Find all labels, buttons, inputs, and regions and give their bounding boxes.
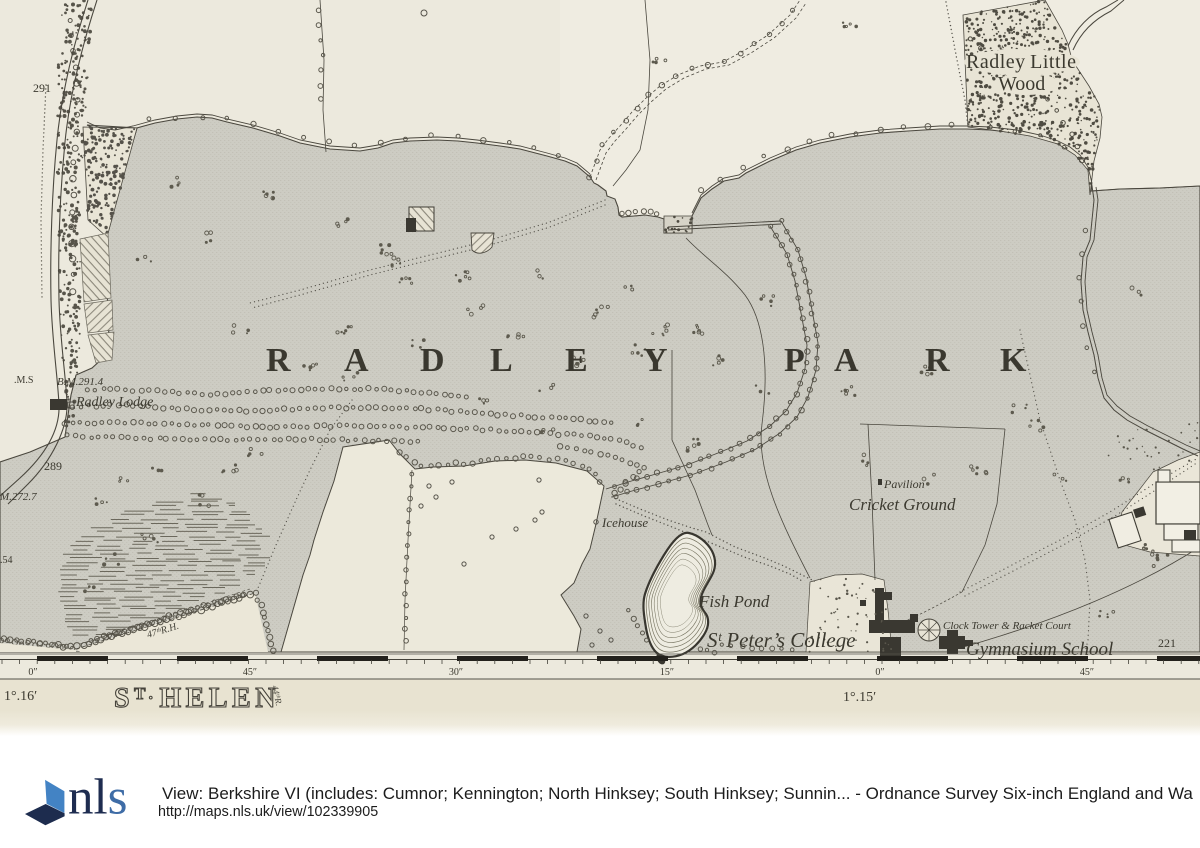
svg-text:15″: 15″ [660, 667, 674, 678]
svg-text:D: D [420, 342, 445, 379]
svg-text:0″: 0″ [875, 667, 884, 678]
svg-text:M.272.7: M.272.7 [0, 491, 37, 503]
svg-text:A: A [834, 342, 859, 379]
svg-text:Cricket Ground: Cricket Ground [849, 495, 956, 514]
svg-text:Clock Tower & Racket Court: Clock Tower & Racket Court [943, 620, 1072, 632]
svg-text:Sᵗ Peter’s College: Sᵗ Peter’s College [707, 628, 856, 652]
svg-text:K: K [1000, 342, 1027, 379]
svg-text:P: P [784, 342, 805, 379]
svg-text:45″: 45″ [1080, 667, 1094, 678]
svg-text:Pavilion: Pavilion [883, 477, 925, 491]
svg-text:Y: Y [643, 342, 668, 379]
svg-text:A: A [344, 342, 369, 379]
svg-text:.54: .54 [0, 555, 13, 566]
svg-text:R: R [266, 342, 291, 379]
svg-text:45″: 45″ [243, 667, 257, 678]
svg-text:Fish Pond: Fish Pond [698, 592, 770, 611]
svg-text:Radley Lodge: Radley Lodge [75, 395, 153, 410]
svg-text:221: 221 [1158, 636, 1176, 650]
svg-text:B.M.291.4: B.M.291.4 [57, 376, 104, 388]
svg-text:L: L [490, 342, 513, 379]
svg-text:E: E [565, 342, 588, 379]
svg-text:Icehouse: Icehouse [601, 515, 648, 530]
svg-text:1°.15′: 1°.15′ [843, 690, 876, 705]
svg-text:.M.S: .M.S [14, 375, 33, 386]
svg-text:291: 291 [33, 81, 51, 95]
svg-text:nls: nls [68, 770, 128, 826]
svg-text:289: 289 [44, 459, 62, 473]
svg-text:Radley Little: Radley Little [966, 51, 1076, 73]
svg-text:30″: 30″ [449, 667, 463, 678]
svg-text:1°.16′: 1°.16′ [4, 689, 37, 704]
svg-text:R: R [925, 342, 950, 379]
svg-text:Wood: Wood [998, 73, 1045, 95]
svg-text:0″: 0″ [28, 667, 37, 678]
